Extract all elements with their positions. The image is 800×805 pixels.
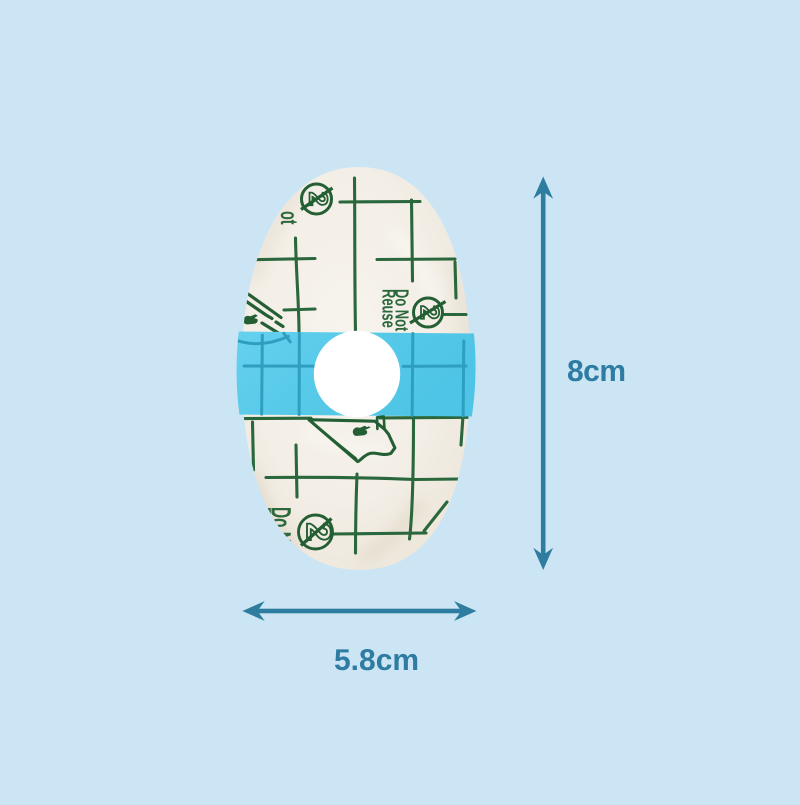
svg-text:Do NotReuse: Do NotReuse: [378, 289, 412, 332]
svg-text:8cm: 8cm: [567, 355, 626, 388]
svg-text:ot: ot: [275, 211, 302, 225]
svg-text:5.8cm: 5.8cm: [334, 644, 419, 677]
svg-text:2: 2: [299, 523, 337, 542]
svg-text:2: 2: [415, 305, 445, 319]
svg-text:2: 2: [304, 192, 334, 206]
